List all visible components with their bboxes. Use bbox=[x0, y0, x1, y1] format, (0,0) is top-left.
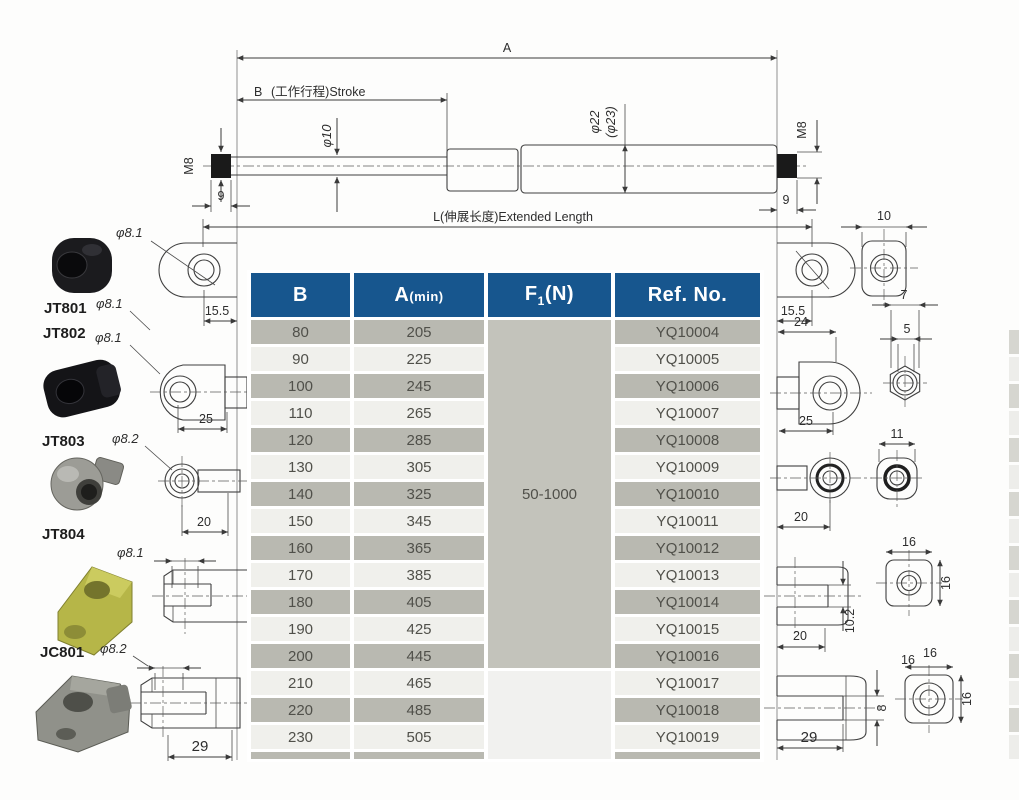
right-clevis-drawing: 8 29 16 16 16 bbox=[764, 646, 974, 752]
cell-b: 190 bbox=[251, 617, 350, 641]
tube-dia-label: φ22 bbox=[587, 110, 602, 134]
right-eyelet2-width-label: 25 bbox=[799, 414, 813, 428]
jt801-photo bbox=[52, 238, 112, 293]
dim-b-label: B bbox=[254, 85, 262, 99]
thread-right bbox=[777, 154, 797, 178]
dim-extended-length: L(伸展长度)Extended Length bbox=[203, 209, 812, 247]
cell-a-min: 265 bbox=[354, 401, 484, 425]
col-header-f-subscript: 1 bbox=[538, 294, 545, 308]
cell-a-min: 445 bbox=[354, 644, 484, 668]
table-header-row: B A(min) F1(N) Ref. No. bbox=[251, 273, 760, 317]
cell-a-min bbox=[354, 752, 484, 759]
cell-b: 130 bbox=[251, 455, 350, 479]
ball-width-label: 20 bbox=[197, 515, 211, 529]
extended-length-label: L(伸展长度)Extended Length bbox=[433, 209, 593, 224]
cell-a-min: 325 bbox=[354, 482, 484, 506]
table-row: 210465YQ10017 bbox=[251, 671, 760, 695]
cell-a-min: 245 bbox=[354, 374, 484, 398]
left-eyelet-drawing: φ8.1 15.5 bbox=[116, 225, 237, 326]
col-header-b: B bbox=[251, 273, 350, 317]
cell-ref: YQ10018 bbox=[615, 698, 760, 722]
eyelet2-len-label: 24 bbox=[794, 315, 808, 329]
cylinder-front bbox=[447, 149, 518, 191]
jt801-label: JT801 bbox=[44, 300, 87, 317]
dim-rod-dia: φ10 bbox=[319, 118, 337, 212]
jt803-label: JT803 bbox=[42, 433, 85, 450]
cell-a-min: 225 bbox=[354, 347, 484, 371]
clevis-slot-label: 8 bbox=[875, 704, 889, 711]
cell-a-min: 425 bbox=[354, 617, 484, 641]
hex-flat-label: 7 bbox=[901, 288, 908, 302]
hex-hole-label: 5 bbox=[904, 322, 911, 336]
cell-b bbox=[251, 752, 350, 759]
cell-ref: YQ10014 bbox=[615, 590, 760, 614]
ball-side-width-label: 11 bbox=[891, 427, 904, 441]
cell-b: 140 bbox=[251, 482, 350, 506]
left-fork-drawing: φ8.1 bbox=[117, 545, 252, 634]
right-ball-width-label: 20 bbox=[794, 510, 808, 524]
jt803-photo bbox=[51, 457, 124, 510]
right-ball-drawing: 20 11 bbox=[770, 427, 923, 531]
cell-a-min: 405 bbox=[354, 590, 484, 614]
cell-ref: YQ10010 bbox=[615, 482, 760, 506]
dim-a: A bbox=[237, 41, 777, 58]
cell-b: 90 bbox=[251, 347, 350, 371]
col-header-a: A(min) bbox=[354, 273, 484, 317]
gas-spring-drawing: A B (工作行程)Stroke φ10 φ22 (φ23) M bbox=[182, 41, 822, 247]
col-header-ref-text: Ref. No. bbox=[648, 284, 728, 306]
eyelet1-width-label: 15.5 bbox=[205, 304, 229, 318]
cell-b: 120 bbox=[251, 428, 350, 452]
col-header-a-sub: (min) bbox=[409, 289, 443, 304]
cell-ref: YQ10005 bbox=[615, 347, 760, 371]
fork-slot-label: 10.2 bbox=[843, 609, 857, 633]
col-header-a-text: A bbox=[394, 284, 409, 306]
cell-a-min: 385 bbox=[354, 563, 484, 587]
cell-b: 80 bbox=[251, 320, 350, 344]
col-header-f-unit: (N) bbox=[545, 283, 574, 305]
col-header-b-text: B bbox=[293, 284, 308, 306]
cell-f1-range: 50-1000 bbox=[488, 320, 611, 668]
cell-ref: YQ10019 bbox=[615, 725, 760, 749]
left-ball-drawing: 20 bbox=[158, 456, 250, 536]
tube-dia-alt-label: (φ23) bbox=[603, 106, 618, 138]
cell-b: 210 bbox=[251, 671, 350, 695]
rod-dia-label: φ10 bbox=[319, 124, 334, 148]
cell-a-min: 505 bbox=[354, 725, 484, 749]
cell-b: 220 bbox=[251, 698, 350, 722]
thread-right-label: M8 bbox=[795, 121, 809, 138]
cell-a-min: 485 bbox=[354, 698, 484, 722]
thread-left bbox=[211, 154, 231, 178]
thread-left-len-label: 9 bbox=[218, 189, 225, 203]
cell-a-min: 205 bbox=[354, 320, 484, 344]
jt803-d-label: φ8.2 bbox=[112, 431, 139, 446]
cell-ref: YQ10009 bbox=[615, 455, 760, 479]
right-clevis-width-label: 29 bbox=[801, 729, 818, 746]
clevis-sq-w2-label: 16 bbox=[901, 653, 915, 667]
stroke-label: (工作行程)Stroke bbox=[271, 84, 366, 99]
col-header-f-text: F bbox=[525, 283, 538, 305]
cylinder-body bbox=[521, 145, 777, 193]
jc801-photo bbox=[36, 676, 132, 752]
fork-width-label: 20 bbox=[793, 629, 807, 643]
gas-spring-datasheet: A B (工作行程)Stroke φ10 φ22 (φ23) M bbox=[0, 0, 1019, 800]
jt802-photo bbox=[40, 356, 124, 421]
cell-ref: YQ10008 bbox=[615, 428, 760, 452]
dim-tube-dia: φ22 (φ23) bbox=[587, 104, 625, 193]
cell-b: 230 bbox=[251, 725, 350, 749]
col-header-ref: Ref. No. bbox=[615, 273, 760, 317]
cell-ref: YQ10006 bbox=[615, 374, 760, 398]
cell-ref: YQ10016 bbox=[615, 644, 760, 668]
thread-left-label: M8 bbox=[182, 157, 196, 174]
thread-right-len-label: 9 bbox=[783, 193, 790, 207]
jc801-dia-label: φ8.2 bbox=[100, 641, 127, 656]
clevis-sq-w-label: 16 bbox=[923, 646, 937, 660]
cell-a-min: 305 bbox=[354, 455, 484, 479]
col-header-f1: F1(N) bbox=[488, 273, 611, 317]
jt802-dia-label: φ8.1 bbox=[95, 330, 122, 345]
cell-a-min: 365 bbox=[354, 536, 484, 560]
cell-b: 170 bbox=[251, 563, 350, 587]
table-row: 8020550-1000YQ10004 bbox=[251, 320, 760, 344]
cell-b: 100 bbox=[251, 374, 350, 398]
eyelet2-width-label: 25 bbox=[199, 412, 213, 426]
eyelet1-dia-label: φ8.1 bbox=[116, 225, 143, 240]
cell-ref: YQ10012 bbox=[615, 536, 760, 560]
nut1-width-label: 10 bbox=[877, 209, 891, 223]
cell-b: 160 bbox=[251, 536, 350, 560]
spec-table: B A(min) F1(N) Ref. No. 8020550-1000YQ10… bbox=[247, 270, 764, 762]
fork-sq-w-label: 16 bbox=[902, 535, 916, 549]
cell-b: 180 bbox=[251, 590, 350, 614]
cell-a-min: 285 bbox=[354, 428, 484, 452]
left-clevis-width-label: 29 bbox=[192, 738, 209, 755]
cell-ref: YQ10015 bbox=[615, 617, 760, 641]
cell-f1-blank bbox=[488, 671, 611, 759]
scan-edge-artifact bbox=[1009, 330, 1019, 759]
cell-ref: YQ10007 bbox=[615, 401, 760, 425]
cell-ref: YQ10013 bbox=[615, 563, 760, 587]
cell-ref: YQ10004 bbox=[615, 320, 760, 344]
left-clevis-drawing: 29 bbox=[130, 656, 252, 761]
jt804-dia-label: φ8.1 bbox=[117, 545, 144, 560]
cell-b: 150 bbox=[251, 509, 350, 533]
jt801-dia-label: φ8.1 bbox=[96, 296, 123, 311]
clevis-sq-h-label: 16 bbox=[960, 692, 974, 706]
jt802-label: JT802 bbox=[43, 325, 86, 342]
cell-ref: YQ10017 bbox=[615, 671, 760, 695]
cell-b: 200 bbox=[251, 644, 350, 668]
cell-a-min: 465 bbox=[354, 671, 484, 695]
cell-ref bbox=[615, 752, 760, 759]
dim-b-stroke: B (工作行程)Stroke bbox=[237, 84, 447, 152]
cell-ref: YQ10011 bbox=[615, 509, 760, 533]
cell-a-min: 345 bbox=[354, 509, 484, 533]
right-fork-drawing: 20 10.2 16 16 bbox=[764, 535, 953, 652]
cell-b: 110 bbox=[251, 401, 350, 425]
fork-sq-h-label: 16 bbox=[939, 576, 953, 590]
jc801-label: JC801 bbox=[40, 644, 84, 661]
jt804-label: JT804 bbox=[42, 526, 85, 543]
dim-a-label: A bbox=[503, 41, 512, 55]
